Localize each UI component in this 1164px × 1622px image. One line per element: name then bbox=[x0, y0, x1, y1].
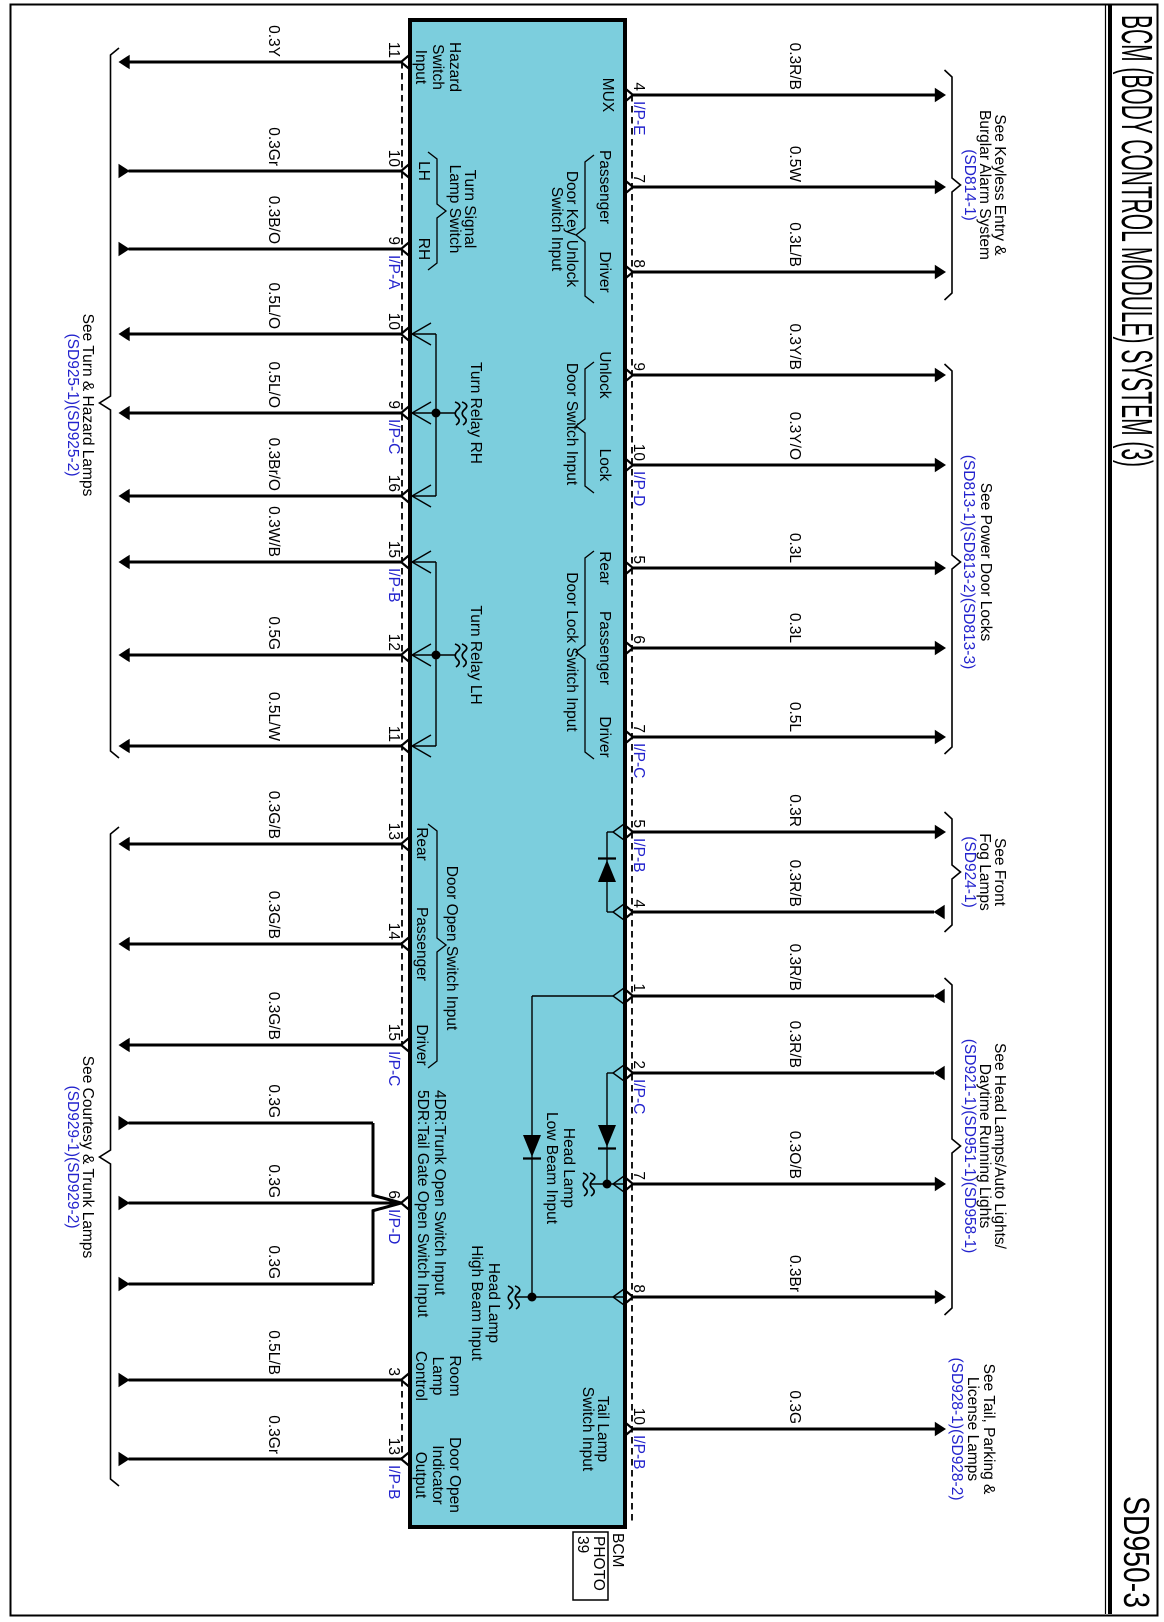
svg-text:Door Open Switch Input: Door Open Switch Input bbox=[443, 866, 460, 1031]
svg-text:4: 4 bbox=[630, 82, 647, 91]
svg-text:0.5L/W: 0.5L/W bbox=[265, 692, 282, 741]
svg-text:License Lamps: License Lamps bbox=[964, 1377, 981, 1482]
svg-text:0.3G: 0.3G bbox=[265, 1084, 282, 1118]
svg-text:High Beam Input: High Beam Input bbox=[468, 1245, 485, 1361]
svg-text:RH: RH bbox=[415, 238, 432, 260]
svg-text:I/P-B: I/P-B bbox=[630, 838, 647, 872]
svg-text:BCM (BODY CONTROL MODULE) SYST: BCM (BODY CONTROL MODULE) SYSTEM (3) bbox=[1112, 15, 1161, 467]
svg-text:4DR:Trunk Open Switch Input: 4DR:Trunk Open Switch Input bbox=[431, 1090, 448, 1296]
svg-text:9: 9 bbox=[630, 362, 647, 371]
svg-text:39: 39 bbox=[574, 1536, 591, 1553]
svg-text:I/P-C: I/P-C bbox=[385, 419, 402, 454]
svg-text:Control: Control bbox=[412, 1351, 429, 1401]
svg-text:LH: LH bbox=[415, 161, 432, 181]
svg-text:(SD924-1): (SD924-1) bbox=[961, 836, 978, 908]
svg-text:0.5L/O: 0.5L/O bbox=[265, 282, 282, 329]
svg-text:Unlock: Unlock bbox=[596, 351, 613, 399]
svg-text:0.3Br/O: 0.3Br/O bbox=[265, 438, 282, 491]
svg-text:I/P-B: I/P-B bbox=[385, 568, 402, 602]
svg-text:10: 10 bbox=[385, 150, 402, 168]
svg-text:I/P-A: I/P-A bbox=[385, 255, 402, 290]
svg-text:2: 2 bbox=[630, 1060, 647, 1069]
svg-text:I/P-C: I/P-C bbox=[630, 743, 647, 778]
svg-text:0.3Gr: 0.3Gr bbox=[265, 127, 282, 166]
svg-text:9: 9 bbox=[385, 236, 402, 245]
svg-text:Head Lamp: Head Lamp bbox=[485, 1263, 502, 1343]
svg-text:Driver: Driver bbox=[413, 1024, 430, 1065]
svg-text:0.5L/B: 0.5L/B bbox=[265, 1330, 282, 1375]
svg-text:(SD814-1): (SD814-1) bbox=[961, 149, 978, 221]
svg-text:(SD925-1)(SD925-2): (SD925-1)(SD925-2) bbox=[64, 334, 81, 477]
svg-text:0.3G: 0.3G bbox=[265, 1245, 282, 1279]
svg-text:I/P-D: I/P-D bbox=[385, 1209, 402, 1244]
svg-text:0.3R/B: 0.3R/B bbox=[786, 43, 803, 90]
svg-text:See Tail, Parking &: See Tail, Parking & bbox=[980, 1364, 997, 1495]
svg-text:0.3L/B: 0.3L/B bbox=[786, 222, 803, 267]
svg-text:(SD813-1)(SD813-2)(SD813-3): (SD813-1)(SD813-2)(SD813-3) bbox=[960, 455, 977, 670]
svg-text:11: 11 bbox=[385, 42, 402, 58]
svg-text:Output: Output bbox=[412, 1452, 429, 1499]
svg-text:1: 1 bbox=[630, 983, 647, 992]
svg-text:9: 9 bbox=[385, 400, 402, 409]
svg-text:11: 11 bbox=[385, 726, 402, 742]
svg-text:0.3G/B: 0.3G/B bbox=[265, 891, 282, 939]
svg-text:3: 3 bbox=[385, 1367, 402, 1376]
svg-text:0.5L: 0.5L bbox=[786, 702, 803, 733]
svg-text:0.3R/B: 0.3R/B bbox=[786, 944, 803, 991]
svg-text:16: 16 bbox=[385, 475, 402, 492]
svg-text:Door Lock Switch Input: Door Lock Switch Input bbox=[563, 572, 580, 732]
svg-text:0.3G/B: 0.3G/B bbox=[265, 791, 282, 839]
svg-text:I/P-C: I/P-C bbox=[385, 1051, 402, 1086]
svg-text:I/P-B: I/P-B bbox=[385, 1465, 402, 1499]
svg-text:Head Lamp: Head Lamp bbox=[560, 1128, 577, 1208]
svg-text:0.3L: 0.3L bbox=[786, 533, 803, 564]
svg-text:5DR:Tail Gate Open Switch Inpu: 5DR:Tail Gate Open Switch Input bbox=[414, 1090, 431, 1318]
svg-text:0.3G/B: 0.3G/B bbox=[265, 992, 282, 1040]
svg-text:I/P-D: I/P-D bbox=[630, 471, 647, 506]
svg-text:10: 10 bbox=[630, 444, 647, 462]
svg-text:Low Beam Input: Low Beam Input bbox=[543, 1112, 560, 1225]
svg-text:13: 13 bbox=[385, 823, 402, 840]
svg-text:Passenger: Passenger bbox=[596, 150, 613, 224]
svg-text:14: 14 bbox=[385, 923, 402, 941]
svg-text:Switch Input: Switch Input bbox=[579, 1387, 596, 1472]
svg-text:0.3Y: 0.3Y bbox=[265, 25, 282, 57]
svg-text:0.5L/O: 0.5L/O bbox=[265, 361, 282, 408]
svg-text:Driver: Driver bbox=[596, 716, 613, 757]
svg-text:0.3R/B: 0.3R/B bbox=[786, 1021, 803, 1068]
svg-text:12: 12 bbox=[385, 634, 402, 651]
svg-text:Turn Relay LH: Turn Relay LH bbox=[467, 605, 484, 704]
svg-text:I/P-E: I/P-E bbox=[630, 101, 647, 135]
svg-text:8: 8 bbox=[630, 259, 647, 268]
svg-text:Input: Input bbox=[412, 50, 429, 85]
svg-text:10: 10 bbox=[385, 313, 402, 331]
svg-text:Passenger: Passenger bbox=[596, 611, 613, 685]
svg-text:Lock: Lock bbox=[596, 449, 613, 482]
svg-text:(SD921-1)(SD951-1)(SD958-1): (SD921-1)(SD951-1)(SD958-1) bbox=[961, 1039, 978, 1254]
svg-text:0.3L: 0.3L bbox=[786, 613, 803, 644]
svg-text:SD950-3: SD950-3 bbox=[1116, 1496, 1157, 1608]
svg-text:Hazard: Hazard bbox=[446, 42, 463, 92]
svg-text:0.3Y/O: 0.3Y/O bbox=[786, 412, 803, 460]
svg-text:0.5W: 0.5W bbox=[786, 146, 803, 183]
svg-text:I/P-C: I/P-C bbox=[630, 1079, 647, 1114]
svg-text:See Power Door Locks: See Power Door Locks bbox=[977, 483, 994, 642]
svg-text:10: 10 bbox=[630, 1408, 647, 1426]
svg-text:5: 5 bbox=[630, 819, 647, 828]
svg-text:Switch Input: Switch Input bbox=[548, 187, 565, 272]
svg-text:7: 7 bbox=[630, 724, 647, 733]
svg-text:0.3Y/B: 0.3Y/B bbox=[786, 323, 803, 370]
svg-text:13: 13 bbox=[385, 1438, 402, 1455]
svg-text:6: 6 bbox=[385, 1190, 402, 1199]
svg-text:Rear: Rear bbox=[596, 551, 613, 585]
svg-text:0.3G: 0.3G bbox=[786, 1390, 803, 1424]
svg-text:0.3Gr: 0.3Gr bbox=[265, 1415, 282, 1454]
svg-text:PHOTO: PHOTO bbox=[590, 1536, 607, 1591]
svg-text:0.5G: 0.5G bbox=[265, 616, 282, 650]
svg-text:6: 6 bbox=[630, 635, 647, 644]
svg-text:0.3W/B: 0.3W/B bbox=[265, 506, 282, 557]
svg-text:15: 15 bbox=[385, 1024, 402, 1041]
svg-text:0.3R: 0.3R bbox=[786, 794, 803, 827]
svg-text:(SD929-1)(SD929-2): (SD929-1)(SD929-2) bbox=[64, 1086, 81, 1229]
svg-text:4: 4 bbox=[630, 899, 647, 908]
svg-text:0.3O/B: 0.3O/B bbox=[786, 1131, 803, 1179]
svg-text:MUX: MUX bbox=[599, 78, 616, 113]
svg-text:0.3G: 0.3G bbox=[265, 1164, 282, 1198]
svg-text:Room: Room bbox=[446, 1355, 463, 1396]
svg-text:7: 7 bbox=[630, 174, 647, 183]
svg-text:Switch: Switch bbox=[429, 44, 446, 90]
svg-text:5: 5 bbox=[630, 555, 647, 564]
svg-text:0.3B/O: 0.3B/O bbox=[265, 196, 282, 244]
svg-text:7: 7 bbox=[630, 1171, 647, 1180]
svg-text:Lamp Switch: Lamp Switch bbox=[446, 165, 463, 254]
svg-text:Door Switch Input: Door Switch Input bbox=[563, 363, 580, 486]
svg-text:15: 15 bbox=[385, 541, 402, 558]
svg-text:Indicator: Indicator bbox=[429, 1445, 446, 1504]
svg-text:Turn Relay RH: Turn Relay RH bbox=[467, 362, 484, 464]
svg-text:Passenger: Passenger bbox=[413, 907, 430, 981]
svg-text:0.3Br: 0.3Br bbox=[786, 1255, 803, 1292]
svg-text:Rear: Rear bbox=[413, 827, 430, 861]
svg-text:0.3R/B: 0.3R/B bbox=[786, 860, 803, 907]
svg-text:(SD928-1)(SD928-2): (SD928-1)(SD928-2) bbox=[948, 1358, 965, 1501]
svg-text:Door Open: Door Open bbox=[446, 1437, 463, 1513]
svg-text:Driver: Driver bbox=[596, 251, 613, 292]
svg-text:I/P-B: I/P-B bbox=[630, 1435, 647, 1469]
svg-text:BCM: BCM bbox=[609, 1533, 626, 1567]
svg-text:Lamp: Lamp bbox=[429, 1357, 446, 1396]
svg-text:8: 8 bbox=[630, 1284, 647, 1293]
